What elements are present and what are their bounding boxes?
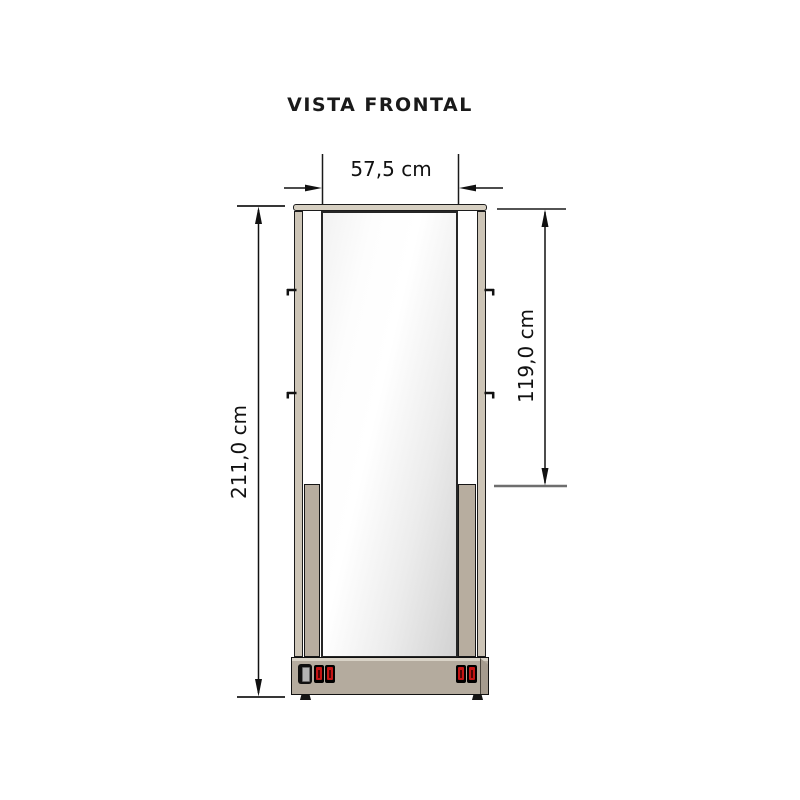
cabinet-top-bar — [293, 204, 487, 211]
switch-mark — [318, 670, 320, 678]
red-rocker-switch-icon — [325, 665, 335, 683]
red-rocker-switch-icon — [314, 665, 324, 683]
arrowhead-down-icon — [542, 468, 549, 486]
mirror-glass-panel — [321, 211, 458, 658]
switch-mark — [329, 670, 331, 678]
right-foot — [472, 695, 483, 700]
switch-mark — [460, 670, 462, 678]
cabinet-left-post — [294, 211, 303, 657]
left-lower-side-panel — [304, 484, 320, 657]
base-right-edge — [480, 658, 488, 694]
arrowhead-left-icon — [459, 185, 476, 192]
power-switch-icon — [298, 664, 312, 684]
arrowhead-right-icon — [305, 185, 322, 192]
left-foot — [300, 695, 311, 700]
red-rocker-switch-icon — [467, 665, 477, 683]
arrowhead-up-icon — [542, 210, 549, 228]
cabinet-right-post — [477, 211, 486, 657]
glass-width-label: 57,5 cm — [350, 157, 431, 181]
page-title: VISTA FRONTAL — [287, 94, 473, 116]
right-lower-side-panel — [458, 484, 476, 657]
red-rocker-switch-icon — [456, 665, 466, 683]
total-height-label: 211,0 cm — [227, 405, 251, 499]
arrowhead-down-icon — [255, 679, 262, 697]
glass-height-label: 119,0 cm — [514, 309, 538, 403]
switch-mark — [471, 670, 473, 678]
technical-drawing-front-view: VISTA FRONTAL — [0, 0, 800, 800]
arrowhead-up-icon — [255, 207, 262, 225]
power-switch-rocker — [302, 667, 310, 682]
